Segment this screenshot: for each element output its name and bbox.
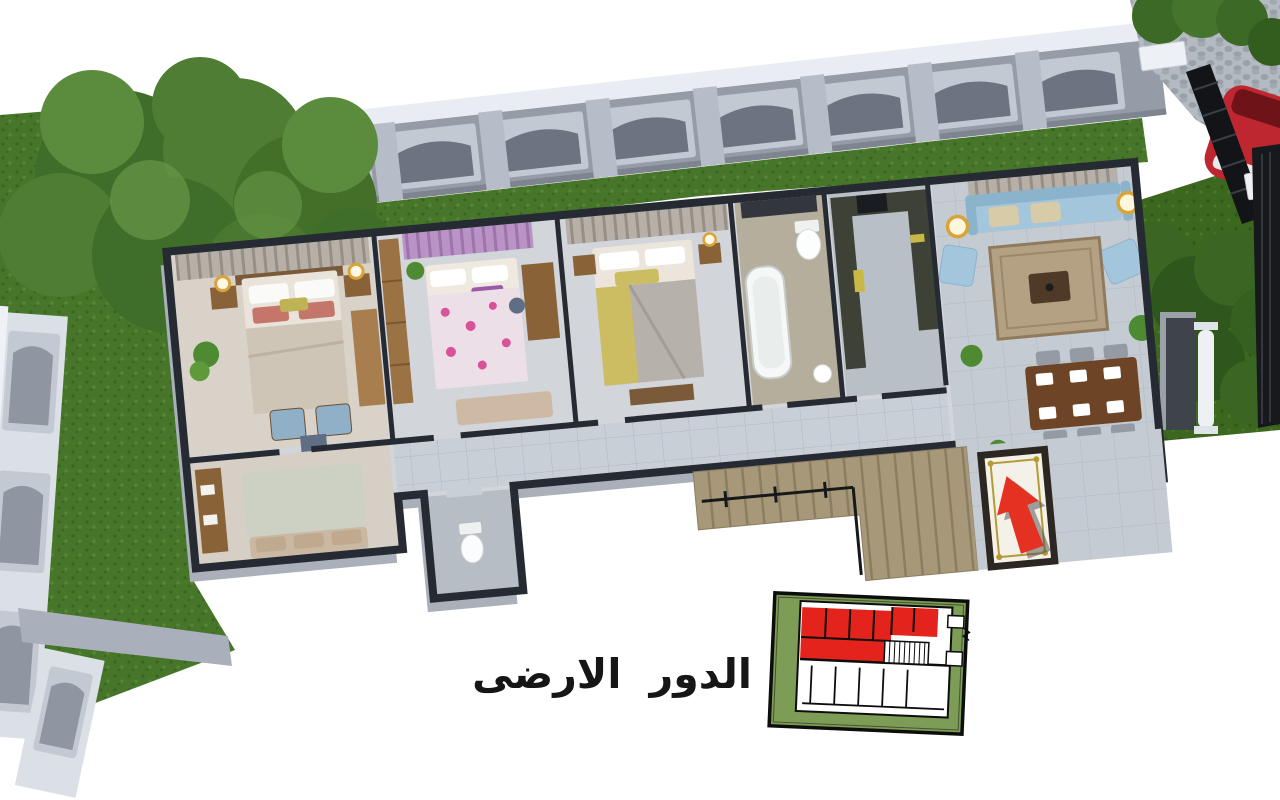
bed-pillow bbox=[294, 278, 335, 300]
fence-arch-panel bbox=[1032, 51, 1126, 118]
kitchen-towel bbox=[853, 269, 865, 292]
fence-arch-panel bbox=[710, 87, 804, 154]
room-master-bedroom bbox=[171, 237, 389, 463]
fence-arch-panel bbox=[388, 123, 482, 190]
fence-arch-panel bbox=[2, 331, 61, 434]
bed-pillow bbox=[429, 268, 466, 287]
key-plan-notch bbox=[946, 651, 963, 666]
kitchen-accent bbox=[910, 234, 925, 243]
fence-arch-panel bbox=[602, 99, 696, 166]
floor-lamp bbox=[947, 216, 969, 238]
plate-setting bbox=[1072, 403, 1090, 417]
fence-arch-panel bbox=[0, 470, 51, 573]
entrance-carpet bbox=[981, 449, 1062, 567]
plate-setting bbox=[1106, 400, 1124, 414]
stove bbox=[856, 193, 888, 214]
dining-chair bbox=[1103, 343, 1128, 359]
key-plan-notch bbox=[948, 615, 965, 628]
armchair bbox=[270, 408, 307, 441]
sofa-cushion bbox=[988, 205, 1020, 228]
plate-setting bbox=[1035, 372, 1053, 386]
terrace-stairs bbox=[693, 447, 978, 596]
armchair bbox=[938, 244, 977, 287]
plate-setting bbox=[1103, 366, 1121, 380]
table-lamp bbox=[215, 276, 230, 291]
bed-blanket bbox=[246, 320, 350, 414]
dining-chair bbox=[1035, 350, 1060, 366]
page-background: الدور الارضى bbox=[0, 0, 1280, 800]
kids-bed bbox=[425, 257, 528, 389]
fence-arch-panel bbox=[817, 75, 911, 142]
plate-setting bbox=[1039, 406, 1057, 420]
fence-arch-panel bbox=[495, 111, 589, 178]
dining-chair bbox=[1069, 347, 1094, 363]
room-wc bbox=[428, 489, 519, 594]
table-lamp bbox=[348, 264, 363, 279]
bed-pillow-accent bbox=[279, 297, 308, 313]
bed-pillow bbox=[471, 264, 508, 283]
plate-setting bbox=[1069, 369, 1087, 383]
master-bed bbox=[235, 266, 355, 415]
armchair bbox=[315, 404, 352, 437]
key-plan-stairs bbox=[884, 641, 929, 665]
area-rug bbox=[241, 463, 366, 538]
dining-table bbox=[1025, 357, 1142, 431]
bed-3 bbox=[592, 239, 704, 386]
table-lamp bbox=[703, 233, 716, 246]
floor-title: الدور الارضى bbox=[452, 644, 772, 704]
fence-arch-panel bbox=[924, 63, 1018, 130]
key-plan bbox=[769, 593, 971, 734]
sofa-cushion bbox=[1030, 201, 1062, 224]
nightstand bbox=[573, 254, 597, 276]
room-sitting bbox=[190, 444, 399, 566]
